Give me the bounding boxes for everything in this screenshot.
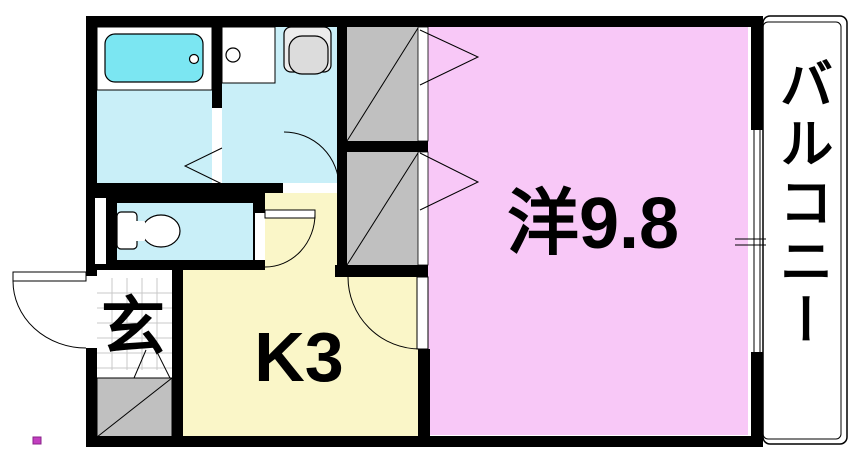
western-room-label: 洋9.8 — [507, 188, 679, 260]
washing-machine-pan-icon — [222, 27, 275, 83]
floor-plan: 洋9.8 K3 玄 バルコニー — [0, 0, 861, 459]
washbasin-icon — [284, 27, 331, 74]
balcony-label: バルコニー — [774, 56, 828, 351]
shoe-cabinet-icon — [97, 378, 172, 437]
floor-plan-drawing — [0, 0, 861, 459]
toilet-window-icon — [95, 198, 106, 264]
kitchen-floor-upper — [265, 193, 337, 270]
bathtub-icon — [97, 27, 212, 90]
kitchen-label: K3 — [254, 322, 343, 392]
entrance-label: 玄 — [101, 295, 165, 359]
magenta-mark — [33, 437, 41, 444]
entrance-door-swing-icon — [13, 272, 97, 348]
